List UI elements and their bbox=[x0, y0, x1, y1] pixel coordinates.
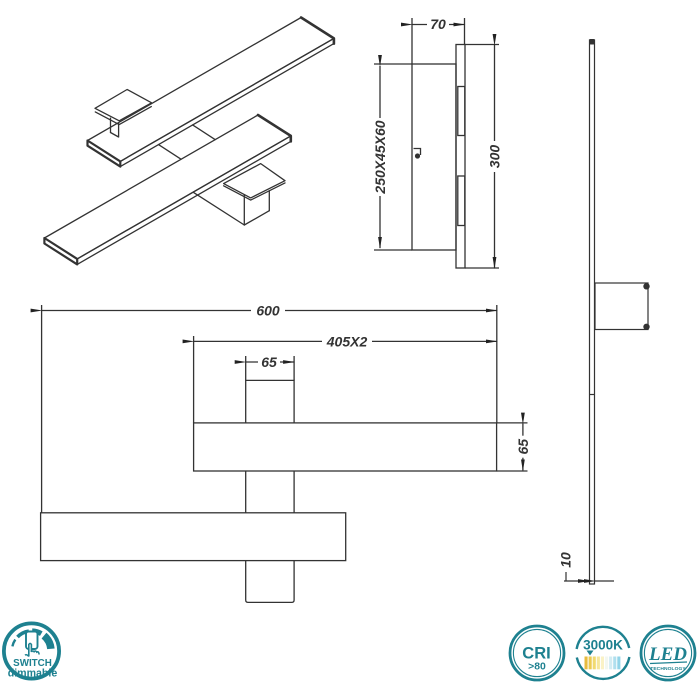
svg-text:CRI: CRI bbox=[522, 645, 550, 663]
svg-text:10: 10 bbox=[558, 552, 574, 568]
svg-text:TECHNOLOGY: TECHNOLOGY bbox=[650, 666, 686, 672]
svg-text:70: 70 bbox=[430, 16, 446, 32]
svg-text:65: 65 bbox=[515, 439, 531, 455]
svg-text:dimmable: dimmable bbox=[8, 668, 58, 680]
svg-text:300: 300 bbox=[487, 145, 503, 169]
svg-text:65: 65 bbox=[261, 354, 277, 370]
svg-text:250X45X60: 250X45X60 bbox=[372, 120, 388, 194]
svg-text:405X2: 405X2 bbox=[326, 333, 368, 349]
svg-text:>80: >80 bbox=[528, 662, 546, 673]
svg-text:3000K: 3000K bbox=[583, 638, 623, 653]
svg-text:600: 600 bbox=[256, 303, 280, 319]
